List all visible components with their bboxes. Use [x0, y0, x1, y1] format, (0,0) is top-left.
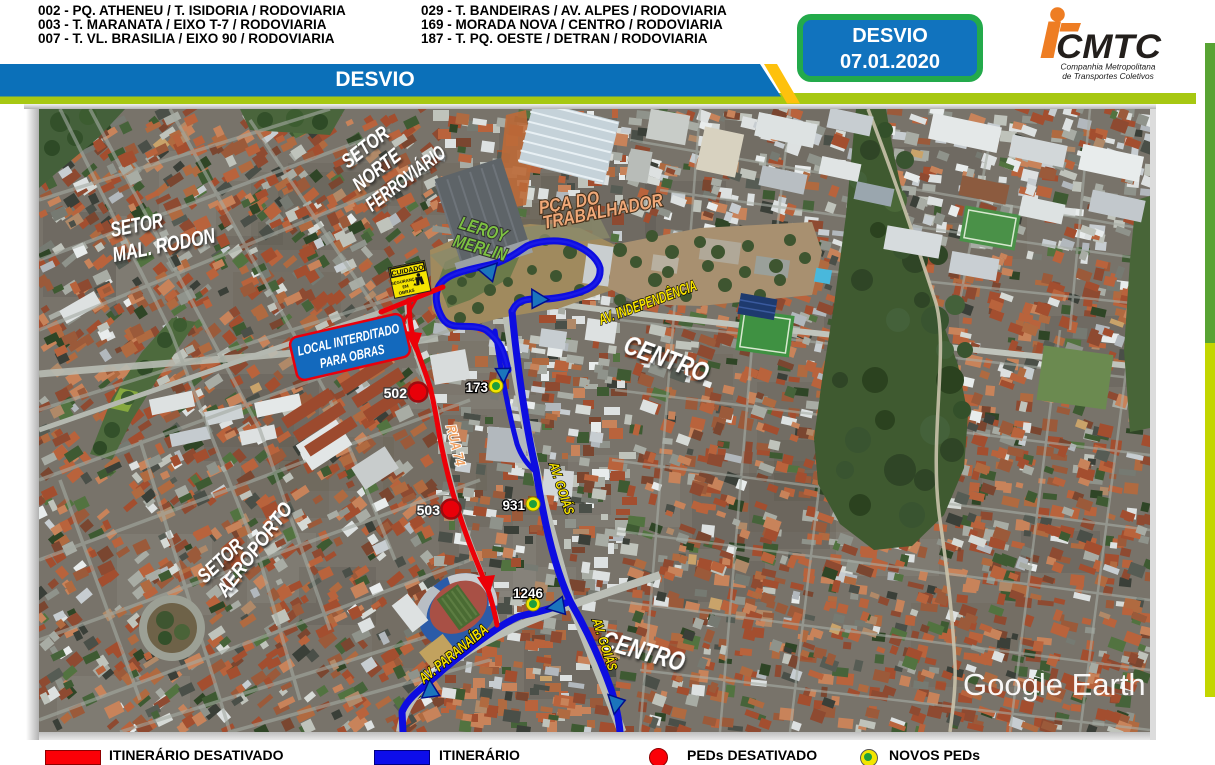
- svg-text:1246: 1246: [513, 586, 544, 601]
- svg-text:Google Earth: Google Earth: [963, 667, 1146, 702]
- svg-text:173: 173: [465, 380, 488, 395]
- svg-text:503: 503: [417, 502, 441, 518]
- svg-text:502: 502: [384, 385, 408, 401]
- svg-text:931: 931: [502, 498, 525, 513]
